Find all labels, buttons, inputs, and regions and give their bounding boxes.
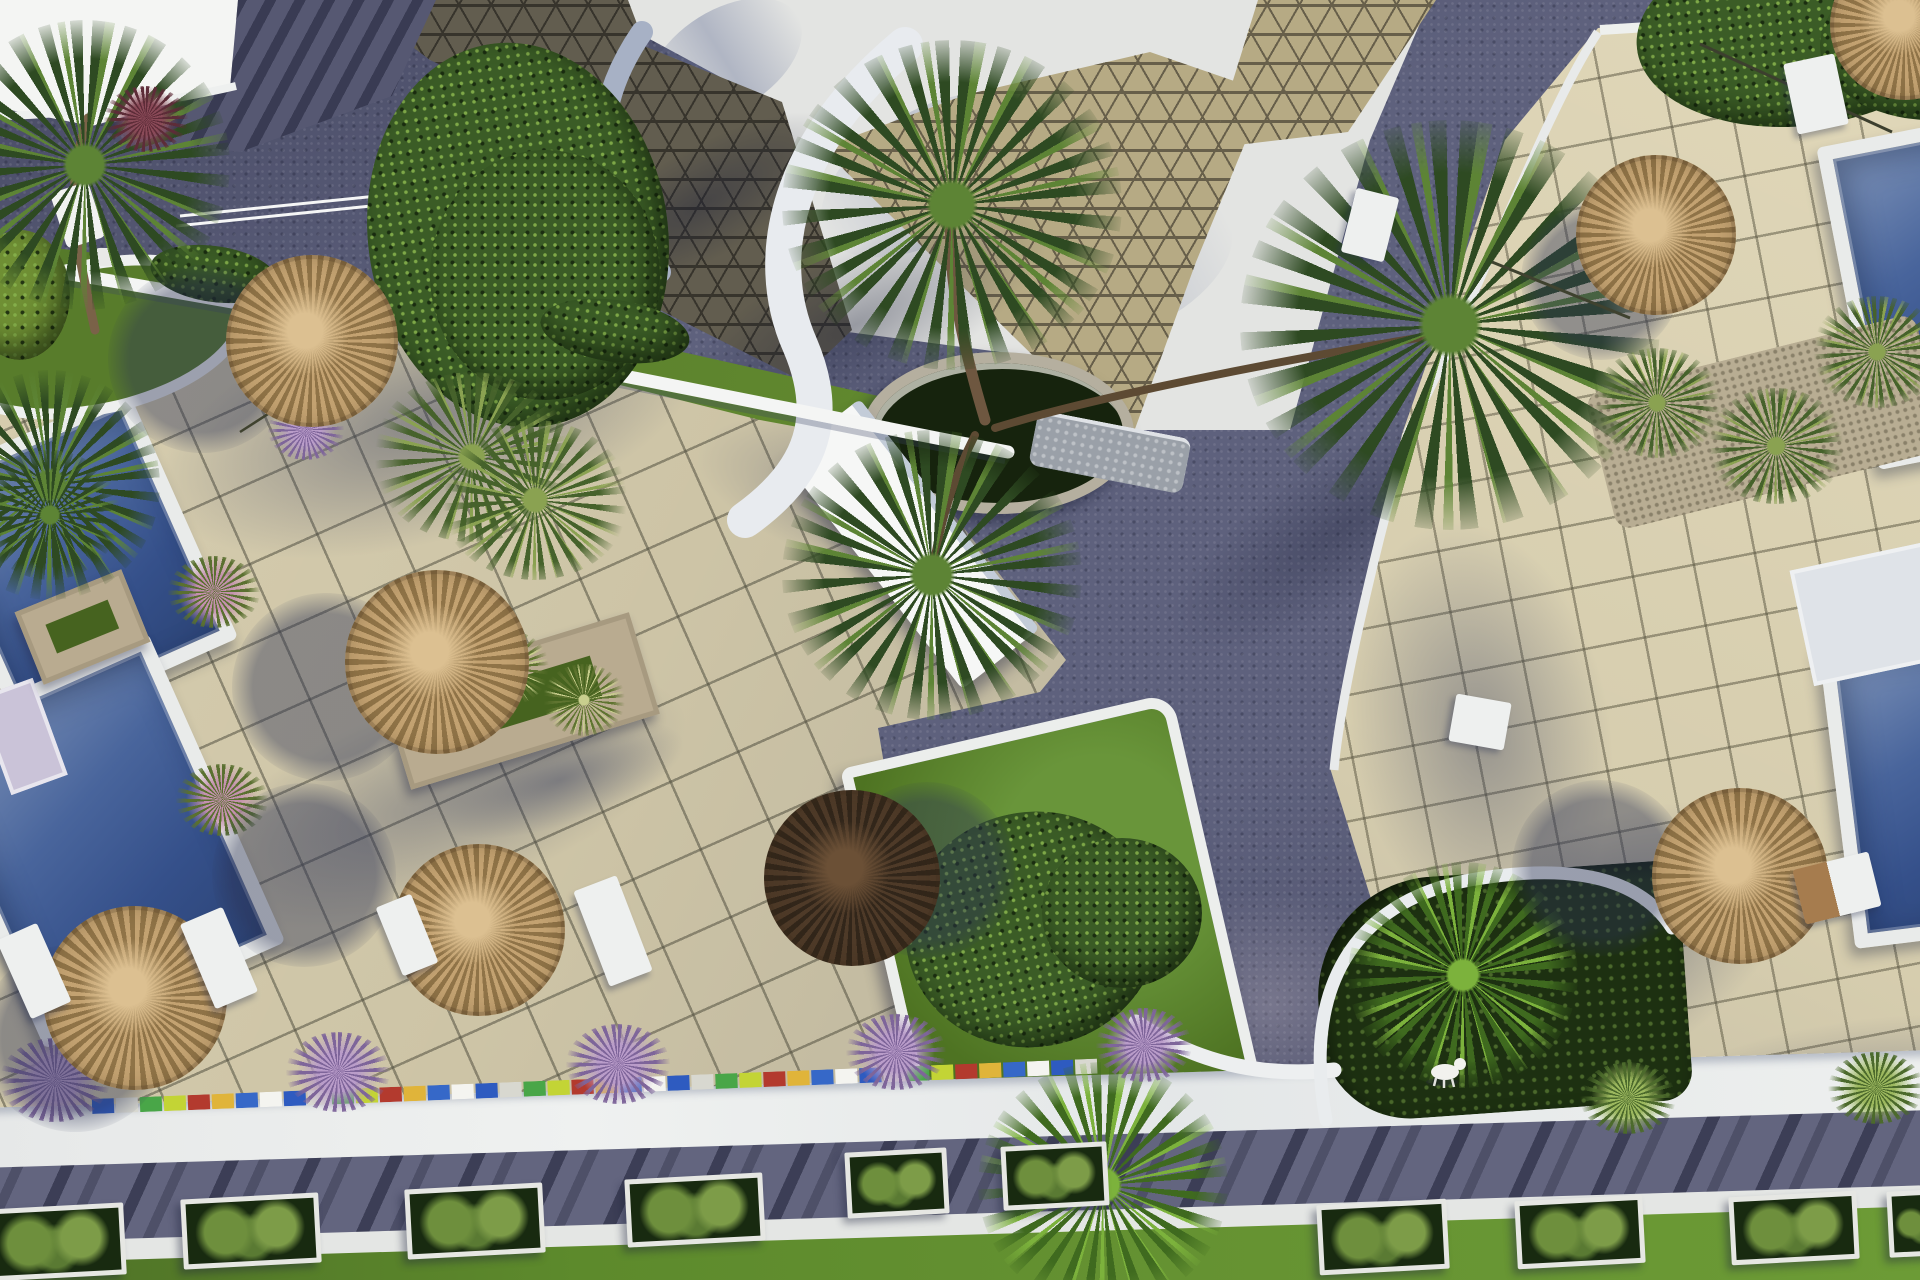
fern-cluster: [1706, 388, 1846, 504]
fern-cluster: [440, 420, 630, 580]
planter-box: [0, 1202, 127, 1280]
planter-box: [180, 1192, 321, 1269]
flower-tuft: [168, 556, 260, 628]
walkway-flower: [1096, 1008, 1192, 1082]
palm-canopy: [782, 430, 1082, 720]
mosaic-tile: [667, 1075, 690, 1091]
walkway-flower: [846, 1014, 946, 1090]
thatch-parasol: [226, 255, 398, 427]
mosaic-tile: [547, 1080, 570, 1096]
mosaic-tile: [811, 1069, 834, 1085]
sun-lounger: [1448, 694, 1511, 751]
planter-box: [1000, 1141, 1109, 1210]
aerial-resort-render: [0, 0, 1920, 1280]
walkway-flower: [566, 1024, 670, 1104]
planter-box: [844, 1147, 949, 1218]
mosaic-tile: [979, 1062, 1002, 1078]
mosaic-tile: [499, 1082, 522, 1098]
mosaic-tile: [212, 1093, 235, 1109]
dark-thatch-parasol: [764, 790, 940, 966]
mosaic-tile: [523, 1081, 546, 1097]
mosaic-tile: [691, 1074, 714, 1090]
mosaic-tile: [715, 1073, 738, 1089]
walkway-flower: [286, 1032, 390, 1112]
bush-on-lawn: [1042, 838, 1202, 988]
parasol-shadow: [212, 783, 396, 967]
walkway-grass: [1828, 1052, 1920, 1124]
planter-box: [1514, 1195, 1645, 1270]
planter-box: [1728, 1191, 1859, 1266]
mosaic-tile: [451, 1084, 474, 1100]
flower-tuft: [104, 86, 188, 152]
mosaic-tile: [236, 1092, 259, 1108]
mosaic-tile: [739, 1072, 762, 1088]
mosaic-tile: [164, 1095, 187, 1111]
planter-box: [624, 1172, 765, 1247]
mosaic-tile: [1003, 1062, 1026, 1078]
walkway-grass: [1580, 1062, 1676, 1134]
mosaic-tile: [955, 1063, 978, 1079]
planter-box: [404, 1182, 545, 1259]
mosaic-tile: [403, 1086, 426, 1102]
thatch-parasol: [345, 570, 529, 754]
mosaic-tile: [427, 1085, 450, 1101]
planter-box: [1316, 1199, 1449, 1276]
thatch-parasol: [1576, 155, 1736, 315]
fern-cluster: [1592, 348, 1722, 458]
palm-canopy: [782, 40, 1122, 370]
grass-tuft: [542, 664, 626, 736]
mosaic-tile: [188, 1094, 211, 1110]
mosaic-tile: [260, 1091, 283, 1107]
mosaic-tile: [787, 1070, 810, 1086]
mosaic-tile: [763, 1071, 786, 1087]
planter-box: [1886, 1188, 1920, 1258]
mosaic-tile: [475, 1083, 498, 1099]
